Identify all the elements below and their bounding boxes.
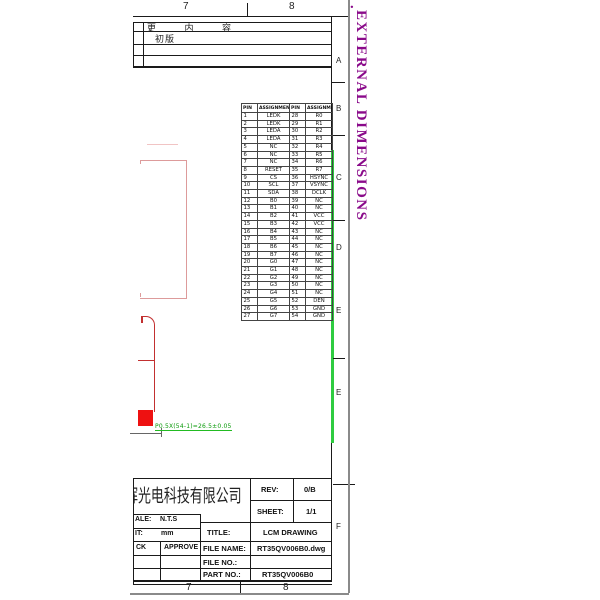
- pin-number: 40: [290, 205, 306, 213]
- dimension-line: [130, 433, 162, 434]
- panel-outline-faint: [147, 144, 178, 145]
- tb-line: [133, 528, 200, 529]
- tb-line: [133, 555, 332, 556]
- pin-number: 44: [290, 236, 306, 244]
- tb-line: [250, 500, 332, 501]
- title-value: LCM DRAWING: [263, 528, 318, 537]
- pin-number: 25: [242, 297, 258, 305]
- pin-table-row: 2 LEDK 29 R1: [242, 120, 333, 128]
- tb-line: [160, 541, 161, 581]
- zone-letter-f: F: [336, 522, 341, 531]
- pin-number: 28: [290, 113, 306, 121]
- pin-assignment: R4: [306, 143, 333, 151]
- pin-number: 4: [242, 136, 258, 144]
- pin-number: 5: [242, 143, 258, 151]
- pin-assignment: SCL: [258, 182, 290, 190]
- pin-assignment: R7: [306, 166, 333, 174]
- sheet-label: SHEET:: [257, 507, 284, 516]
- pin-assignment: LEDK: [258, 120, 290, 128]
- pin-assignment: B0: [258, 197, 290, 205]
- pin-assignment: VSYNC: [306, 182, 333, 190]
- part-no-value: RT35QV006B0: [262, 570, 313, 579]
- pin-assignment: LEDA: [258, 128, 290, 136]
- pin-number: 53: [290, 305, 306, 313]
- pin-number: 33: [290, 151, 306, 159]
- pin-table-row: 14 B2 41 VCC: [242, 213, 333, 221]
- pin-number: 31: [290, 136, 306, 144]
- grid-tick-bottom: [240, 582, 241, 593]
- pin-number: 2: [242, 120, 258, 128]
- pin-table-row: 6 NC 33 R5: [242, 151, 333, 159]
- section-title-external-dimensions: EXTERNAL DIMENSIONS: [352, 10, 369, 221]
- pin-number: 8: [242, 166, 258, 174]
- pin-assignment: G7: [258, 313, 290, 321]
- pin-assignment: G6: [258, 305, 290, 313]
- tb-line: [133, 580, 332, 582]
- pin-number: 41: [290, 213, 306, 221]
- rev-line: [133, 22, 134, 67]
- pin-assignment: NC: [306, 251, 333, 259]
- pin-assignment: NC: [306, 267, 333, 275]
- pin-assignment: NC: [306, 282, 333, 290]
- pin-assignment: NC: [306, 274, 333, 282]
- pin-number: 30: [290, 128, 306, 136]
- zone-tick: [332, 220, 345, 221]
- pin-assignment: HSYNC: [306, 174, 333, 182]
- pin-table-row: 9 CS 36 HSYNC: [242, 174, 333, 182]
- assignment-header: ASSIGNMENT: [306, 104, 333, 113]
- pin-table-row: 3 LEDA 30 R2: [242, 128, 333, 136]
- pin-table-row: 26 G6 53 GND: [242, 305, 333, 313]
- pin-assignment-table: PIN ASSIGNMENT PIN ASSIGNMENT 1 LEDK 28 …: [241, 103, 333, 321]
- file-name-label: FILE NAME:: [203, 544, 246, 553]
- pin-number: 10: [242, 182, 258, 190]
- grid-tick-top: [247, 3, 248, 16]
- pin-table-row: 5 NC 32 R4: [242, 143, 333, 151]
- unit-label: IT:: [135, 530, 143, 537]
- pin-number: 52: [290, 297, 306, 305]
- pin-assignment: B3: [258, 220, 290, 228]
- unit-value: mm: [161, 530, 173, 537]
- pin-assignment: LEDK: [258, 113, 290, 121]
- zone-letter-e2: E: [336, 388, 341, 397]
- pin-assignment: DCLK: [306, 190, 333, 198]
- pin-number: 6: [242, 151, 258, 159]
- fpc-pitch-dimension-label: P0.5X(54-1)=26.5±0.05: [155, 423, 232, 431]
- pin-assignment: R5: [306, 151, 333, 159]
- pin-table-row: 21 G1 48 NC: [242, 267, 333, 275]
- revision-entry: 初版: [155, 32, 175, 45]
- pin-assignment: NC: [306, 236, 333, 244]
- pin-assignment: G2: [258, 274, 290, 282]
- tb-line: [133, 514, 200, 515]
- pin-number: 17: [242, 236, 258, 244]
- pin-assignment: R1: [306, 120, 333, 128]
- pin-number: 45: [290, 243, 306, 251]
- pin-assignment: G5: [258, 297, 290, 305]
- tb-line: [133, 478, 332, 479]
- pin-number: 50: [290, 282, 306, 290]
- pin-assignment: NC: [306, 259, 333, 267]
- pin-number: 18: [242, 243, 258, 251]
- rev-line: [143, 22, 144, 67]
- tb-line: [133, 584, 332, 585]
- rev-line: [133, 55, 332, 56]
- pin-table-row: 17 B5 44 NC: [242, 236, 333, 244]
- pin-number: 51: [290, 290, 306, 298]
- pin-number: 37: [290, 182, 306, 190]
- pin-assignment: DEN: [306, 297, 333, 305]
- page-top-line: [133, 16, 348, 17]
- pin-number: 1: [242, 113, 258, 121]
- pin-number: 39: [290, 197, 306, 205]
- panel-outline-stub: [140, 293, 141, 297]
- part-no-label: PART NO.:: [203, 570, 241, 579]
- pin-assignment: G1: [258, 267, 290, 275]
- pin-header: PIN: [290, 104, 306, 113]
- zone-tick: [332, 82, 345, 83]
- pin-assignment: CS: [258, 174, 290, 182]
- panel-outline: [140, 160, 187, 299]
- pin-number: 26: [242, 305, 258, 313]
- pin-header: PIN: [242, 104, 258, 113]
- pin-assignment: NC: [258, 143, 290, 151]
- pin-assignment: R6: [306, 159, 333, 167]
- check-label: CK: [136, 544, 146, 551]
- pin-table-row: 16 B4 43 NC: [242, 228, 333, 236]
- pin-assignment: B5: [258, 236, 290, 244]
- pin-assignment: B6: [258, 243, 290, 251]
- pin-table-row: 12 B0 39 NC: [242, 197, 333, 205]
- panel-outline-stub: [140, 160, 141, 164]
- grid-number-8-bottom: 8: [283, 582, 289, 593]
- approve-label: APPROVE: [164, 544, 198, 551]
- pin-number: 3: [242, 128, 258, 136]
- pin-number: 49: [290, 274, 306, 282]
- pin-number: 38: [290, 190, 306, 198]
- pin-number: 19: [242, 251, 258, 259]
- title-label: TITLE:: [207, 528, 230, 537]
- tb-line: [200, 514, 201, 581]
- pin-number: 21: [242, 267, 258, 275]
- pin-assignment: R0: [306, 113, 333, 121]
- pin-assignment: NC: [306, 197, 333, 205]
- pin-assignment: GND: [306, 305, 333, 313]
- pin-number: 24: [242, 290, 258, 298]
- drawing-sheet: 7 8 更 内 容 初版 A B C D E E F . EXTERNAL DI…: [0, 0, 600, 600]
- zone-letter-b: B: [336, 104, 341, 113]
- pin-number: 7: [242, 159, 258, 167]
- tb-line: [133, 541, 332, 542]
- pin-table-row: 23 G3 50 NC: [242, 282, 333, 290]
- pin-assignment: SDA: [258, 190, 290, 198]
- pin-number: 13: [242, 205, 258, 213]
- rev-value: 0/B: [304, 485, 316, 494]
- sheet-value: 1/1: [306, 507, 316, 516]
- assignment-header: ASSIGNMENT: [258, 104, 290, 113]
- pin-number: 43: [290, 228, 306, 236]
- pin-number: 34: [290, 159, 306, 167]
- grid-number-8-top: 8: [289, 1, 295, 12]
- pin-table-row: 27 G7 54 GND: [242, 313, 333, 321]
- zone-tick: [333, 484, 355, 485]
- pin-assignment: RESET: [258, 166, 290, 174]
- fpc-tick: [138, 360, 155, 361]
- pin-number: 29: [290, 120, 306, 128]
- tb-line: [133, 568, 332, 569]
- rev-line: [133, 66, 332, 68]
- pin-assignment: G3: [258, 282, 290, 290]
- pin-table-row: 18 B6 45 NC: [242, 243, 333, 251]
- pin-table-row: 24 G4 51 NC: [242, 290, 333, 298]
- grid-number-7-top: 7: [183, 1, 189, 12]
- pin-table-row: 22 G2 49 NC: [242, 274, 333, 282]
- zone-tick: [333, 358, 345, 359]
- pin-number: 47: [290, 259, 306, 267]
- pin-table-row: 7 NC 34 R6: [242, 159, 333, 167]
- file-name-value: RT35QV006B0.dwg: [257, 544, 325, 553]
- page-edge-right: [348, 0, 350, 593]
- zone-letter-c: C: [336, 173, 342, 182]
- rev-label: REV:: [261, 485, 279, 494]
- pin-table-row: 8 RESET 35 R7: [242, 166, 333, 174]
- tb-line: [200, 522, 332, 523]
- zone-tick: [332, 135, 345, 136]
- pin-number: 46: [290, 251, 306, 259]
- pin-assignment: R3: [306, 136, 333, 144]
- pin-number: 20: [242, 259, 258, 267]
- pin-assignment: B2: [258, 213, 290, 221]
- pin-assignment: VCC: [306, 213, 333, 221]
- pin-number: 48: [290, 267, 306, 275]
- pin-assignment: NC: [306, 243, 333, 251]
- company-name: 辉光电科技有限公司: [134, 480, 250, 513]
- scale-label: ALE:: [135, 516, 151, 523]
- pin-assignment: B7: [258, 251, 290, 259]
- pin-table-row: 4 LEDA 31 R3: [242, 136, 333, 144]
- pin-assignment: B1: [258, 205, 290, 213]
- tb-line: [250, 478, 251, 581]
- zone-letter-d: D: [336, 243, 342, 252]
- pin-assignment: LEDA: [258, 136, 290, 144]
- pin-assignment: NC: [306, 205, 333, 213]
- pin-number: 32: [290, 143, 306, 151]
- pin-number: 12: [242, 197, 258, 205]
- pin-number: 22: [242, 274, 258, 282]
- pin-assignment: G0: [258, 259, 290, 267]
- pin-assignment: NC: [258, 151, 290, 159]
- pin-assignment: GND: [306, 313, 333, 321]
- zone-letter-e: E: [336, 306, 341, 315]
- pin-assignment: G4: [258, 290, 290, 298]
- pin-number: 36: [290, 174, 306, 182]
- pin-assignment: NC: [306, 290, 333, 298]
- pin-number: 35: [290, 166, 306, 174]
- file-no-label: FILE NO.:: [203, 558, 237, 567]
- pin-number: 9: [242, 174, 258, 182]
- pin-table-row: 10 SCL 37 VSYNC: [242, 182, 333, 190]
- pin-number: 54: [290, 313, 306, 321]
- scale-value: N.T.S: [160, 516, 177, 523]
- pin-assignment: VCC: [306, 220, 333, 228]
- pin-table-row: 20 G0 47 NC: [242, 259, 333, 267]
- pin-number: 11: [242, 190, 258, 198]
- pin-number: 23: [242, 282, 258, 290]
- fpc-outline: [141, 316, 155, 412]
- pin-table-row: 19 B7 46 NC: [242, 251, 333, 259]
- grid-number-7-bottom: 7: [186, 582, 192, 593]
- tb-line: [293, 478, 294, 522]
- fpc-connector-pad: [138, 410, 153, 426]
- pin-number: 27: [242, 313, 258, 321]
- pin-assignment: R2: [306, 128, 333, 136]
- pin-table-header-row: PIN ASSIGNMENT PIN ASSIGNMENT: [242, 104, 333, 113]
- pin-assignment: NC: [306, 228, 333, 236]
- pin-table-row: 13 B1 40 NC: [242, 205, 333, 213]
- pin-table-row: 25 G5 52 DEN: [242, 297, 333, 305]
- zone-letter-a: A: [336, 56, 341, 65]
- fpc-outline-stub: [141, 316, 143, 323]
- pin-number: 14: [242, 213, 258, 221]
- pin-table-row: 11 SDA 38 DCLK: [242, 190, 333, 198]
- pin-table-row: 1 LEDK 28 R0: [242, 113, 333, 121]
- pin-assignment: B4: [258, 228, 290, 236]
- pin-number: 16: [242, 228, 258, 236]
- pin-assignment: NC: [258, 159, 290, 167]
- page-edge-bottom: [130, 593, 349, 595]
- pin-number: 42: [290, 220, 306, 228]
- pin-table-body: 1 LEDK 28 R0 2 LEDK 29 R1 3 LEDA 30 R2: [242, 113, 333, 321]
- pin-table-row: 15 B3 42 VCC: [242, 220, 333, 228]
- pin-number: 15: [242, 220, 258, 228]
